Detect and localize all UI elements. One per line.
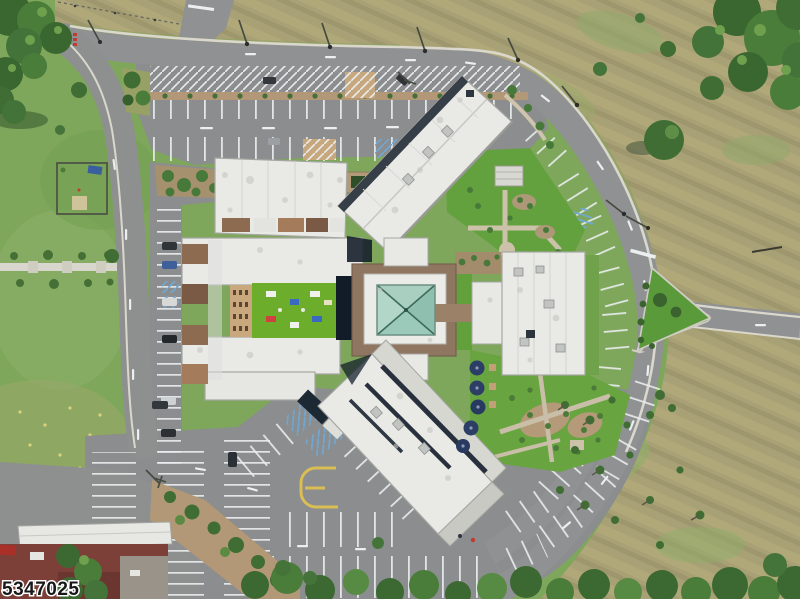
car: [162, 298, 177, 306]
north-notch-shadow: [347, 236, 372, 262]
pyramid-skylight: [377, 285, 435, 335]
car: [152, 401, 168, 409]
car: [161, 429, 176, 437]
car: [228, 452, 237, 467]
red-roof-marker: [471, 538, 475, 542]
watermark: 5347025: [2, 579, 79, 599]
aerial-photo: 5347025: [0, 0, 800, 599]
turf-courtyard: [252, 283, 336, 338]
car: [162, 242, 177, 250]
north-block: [215, 158, 347, 238]
car: [268, 138, 280, 145]
car: [263, 77, 276, 84]
pergola-columns: [489, 364, 496, 408]
car: [162, 335, 177, 343]
red-striped-barrier: [73, 33, 77, 46]
left-parking-column: [157, 200, 181, 466]
road-island-trees: [122, 68, 151, 116]
north-garden-bed: [455, 252, 501, 274]
northwest-planting-bed: [155, 165, 222, 198]
red-car: [0, 544, 16, 555]
sand-patch: [72, 196, 87, 210]
aerial-photo-scene: 5347025: [0, 0, 800, 599]
car: [162, 261, 177, 269]
accessible-stall-1: [162, 281, 179, 293]
pergola-pavilion: [495, 166, 523, 186]
